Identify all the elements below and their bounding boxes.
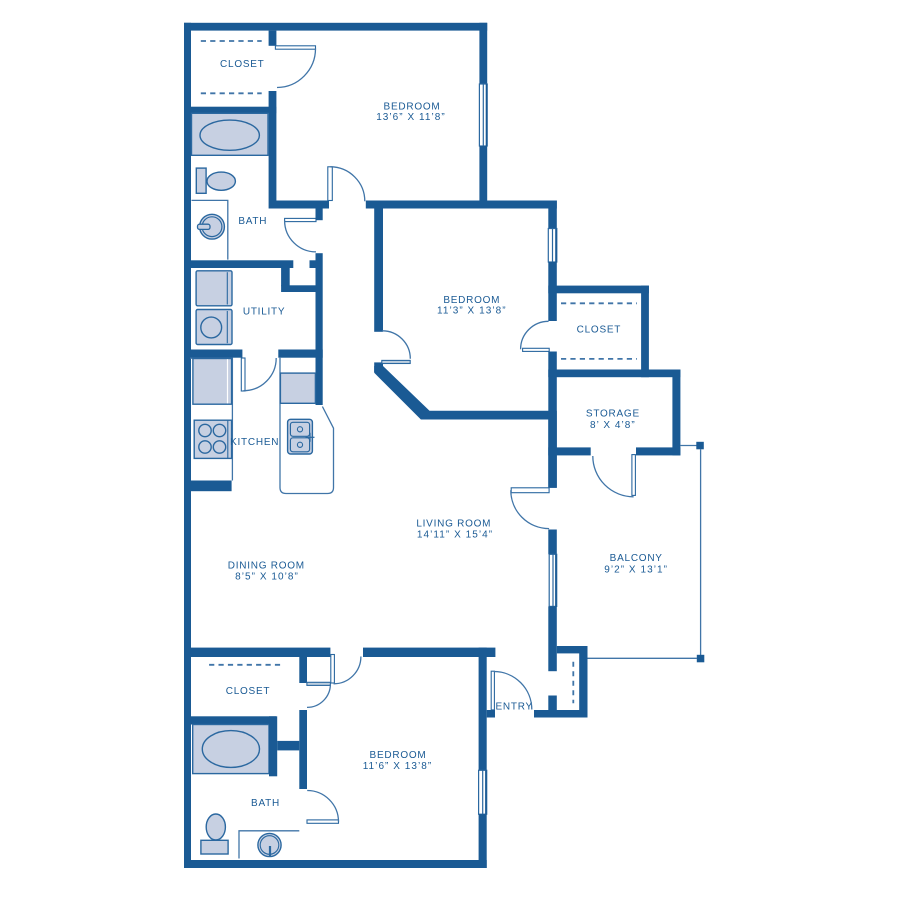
svg-text:BEDROOM: BEDROOM xyxy=(384,101,441,112)
svg-text:8’5” X 10’8”: 8’5” X 10’8” xyxy=(235,572,299,583)
svg-text:ENTRY: ENTRY xyxy=(495,702,532,713)
svg-text:CLOSET: CLOSET xyxy=(577,324,622,335)
svg-text:11’6” X 13’8”: 11’6” X 13’8” xyxy=(363,761,433,772)
svg-text:BALCONY: BALCONY xyxy=(610,553,663,564)
svg-text:BEDROOM: BEDROOM xyxy=(370,750,427,761)
svg-text:9’2” X 13’1”: 9’2” X 13’1” xyxy=(604,565,668,576)
svg-text:STORAGE: STORAGE xyxy=(586,409,640,420)
svg-text:KITCHEN: KITCHEN xyxy=(230,437,279,448)
svg-text:UTILITY: UTILITY xyxy=(243,307,285,318)
svg-text:LIVING ROOM: LIVING ROOM xyxy=(416,519,491,530)
svg-text:BATH: BATH xyxy=(251,798,280,809)
svg-text:8’ X 4’8”: 8’ X 4’8” xyxy=(590,420,636,431)
svg-text:BATH: BATH xyxy=(238,216,267,227)
svg-text:11’3” X 13’8”: 11’3” X 13’8” xyxy=(437,305,507,316)
svg-text:13’6” X 11’8”: 13’6” X 11’8” xyxy=(376,112,446,123)
svg-text:14’11” X 15’4”: 14’11” X 15’4” xyxy=(417,530,493,541)
svg-text:DINING ROOM: DINING ROOM xyxy=(228,561,305,572)
svg-text:CLOSET: CLOSET xyxy=(220,59,265,70)
svg-text:CLOSET: CLOSET xyxy=(226,686,271,697)
